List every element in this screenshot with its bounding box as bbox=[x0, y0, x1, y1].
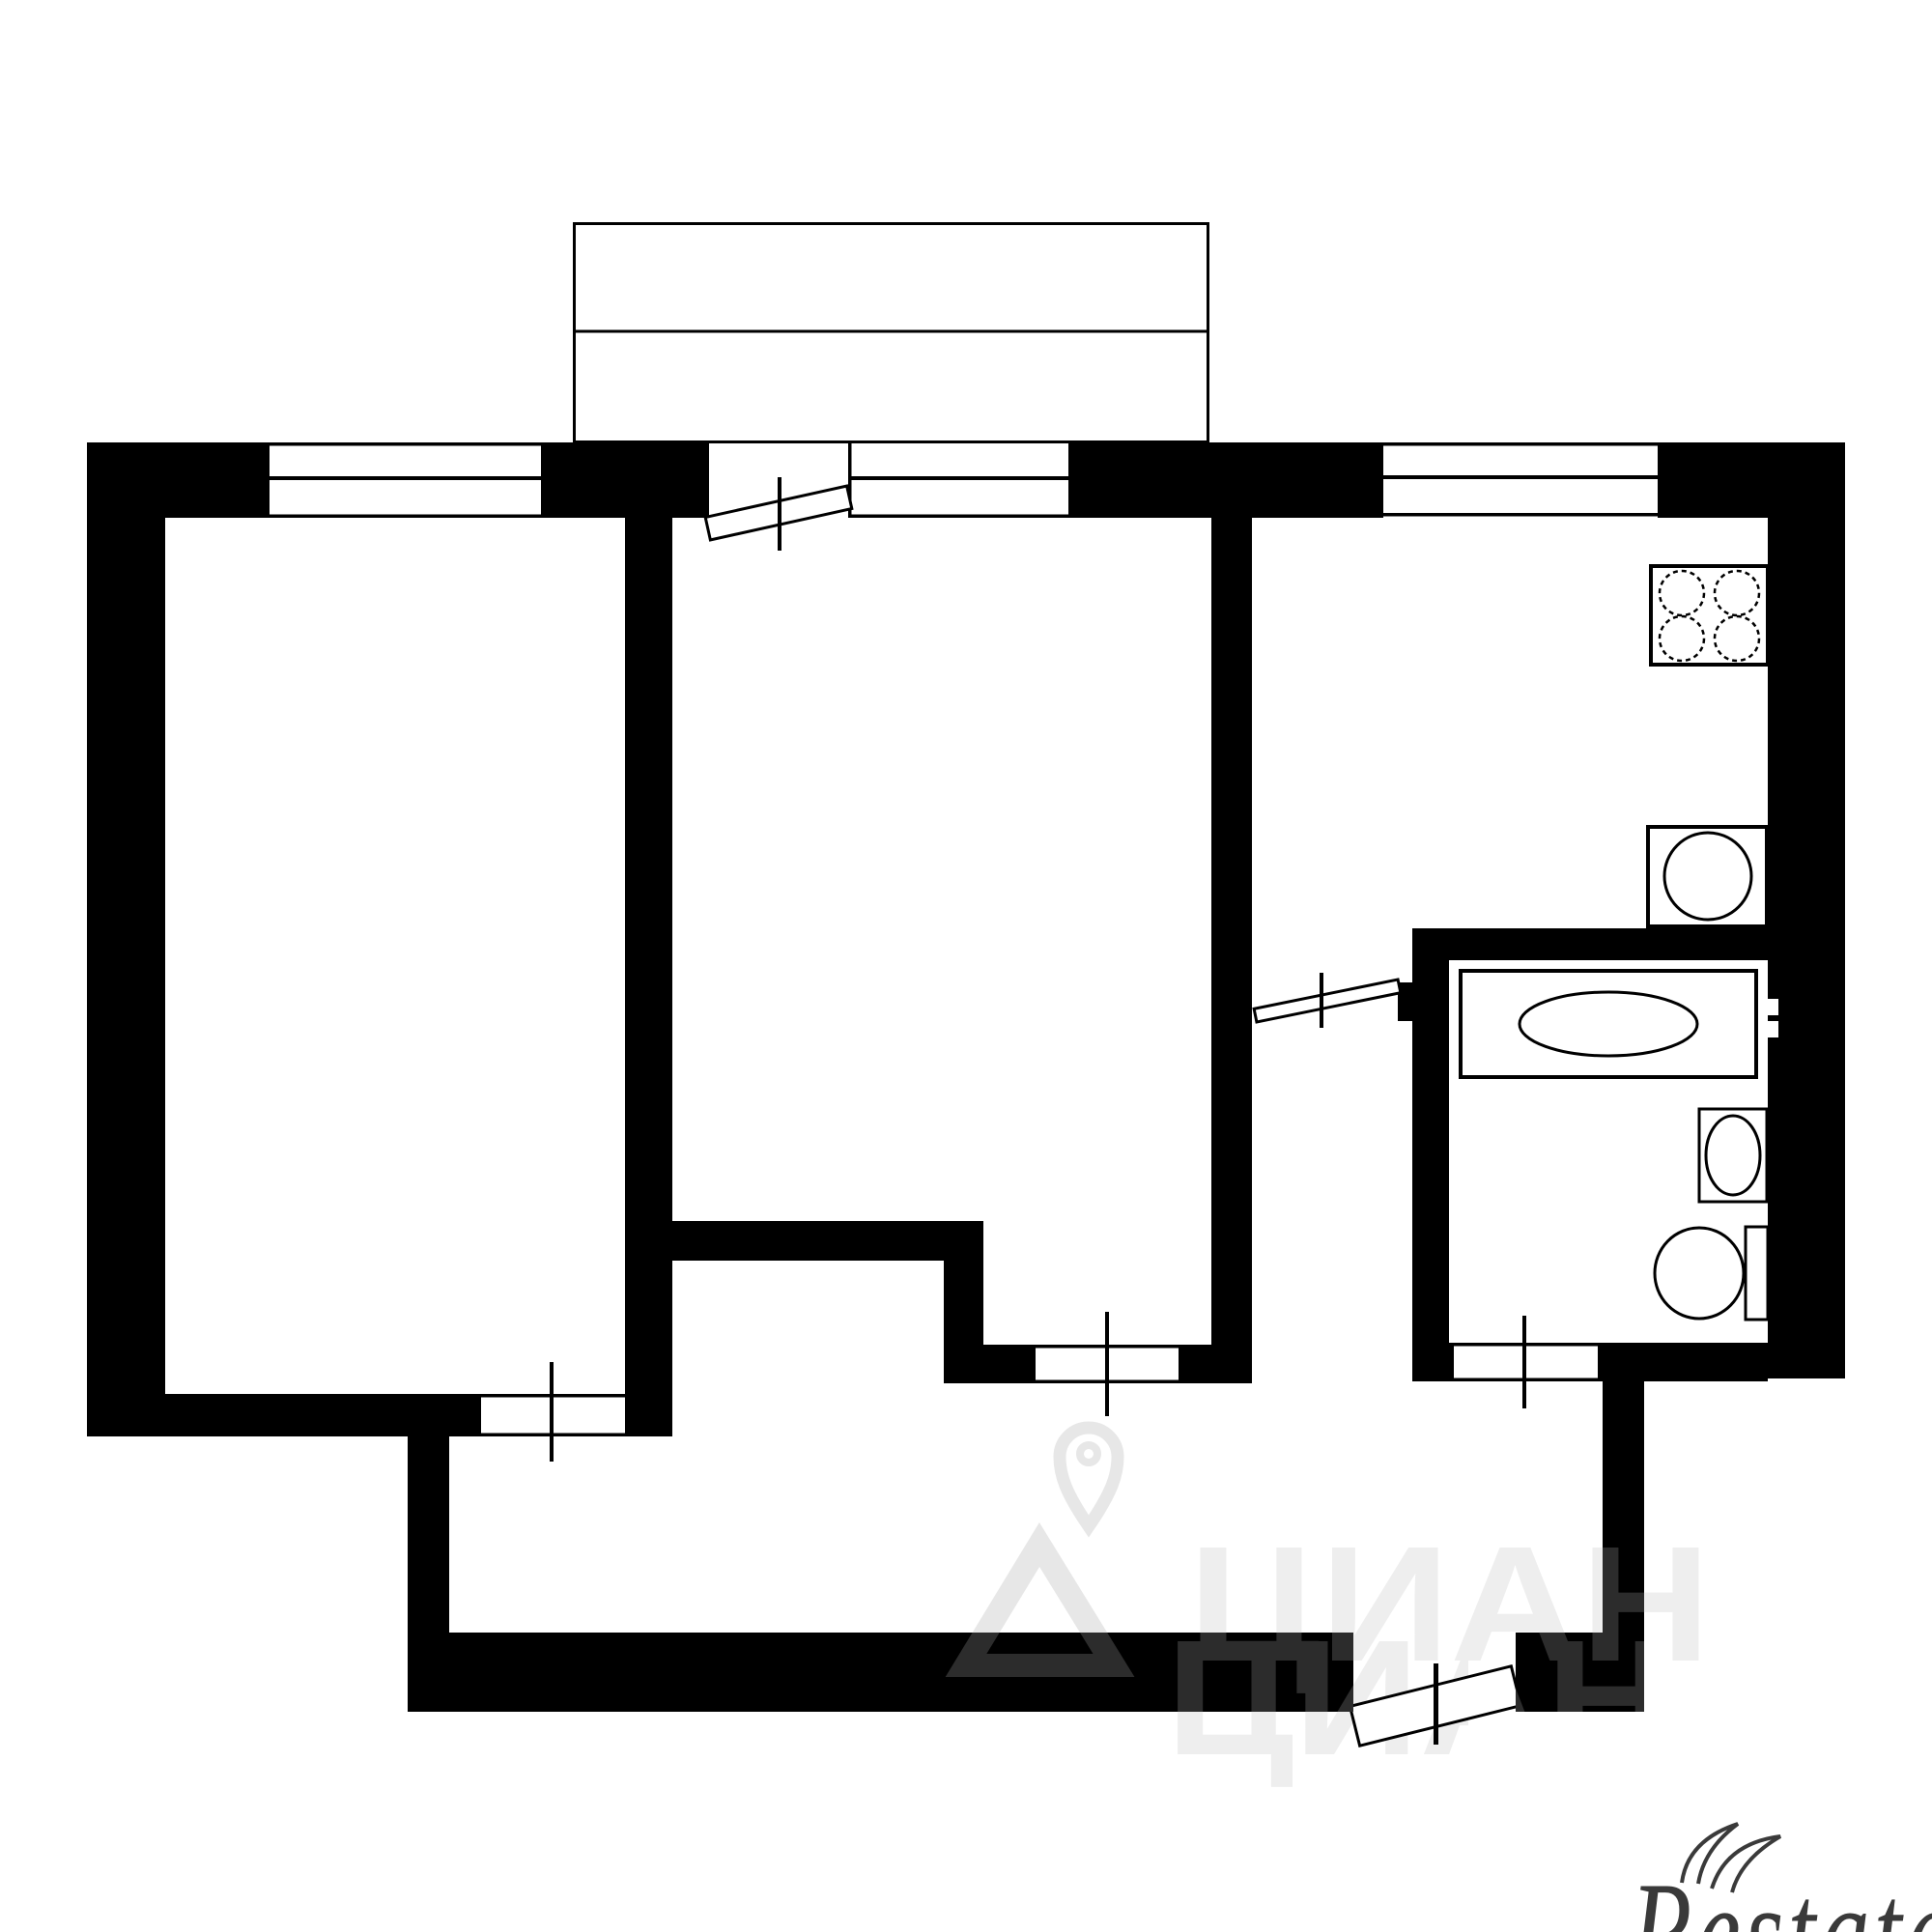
svg-text:Restate: Restate bbox=[1630, 1853, 1932, 1932]
